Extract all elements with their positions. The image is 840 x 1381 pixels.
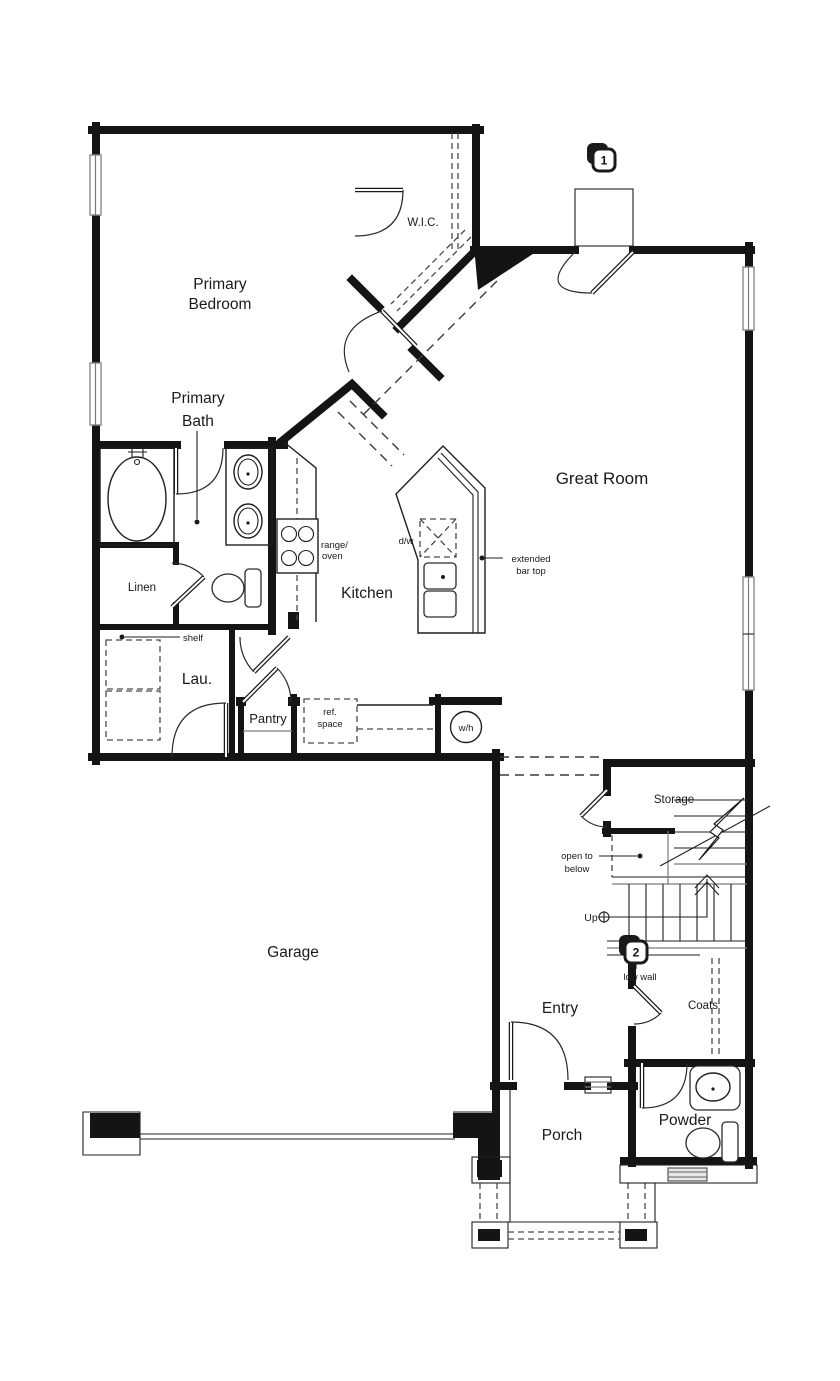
label-laundry: Lau.	[182, 671, 212, 688]
label-primary-bedroom-1: Primary	[193, 276, 247, 293]
label-range-1: range/	[321, 540, 348, 551]
marker-1-number: 1	[601, 154, 608, 168]
label-great-room: Great Room	[556, 469, 649, 488]
leader-lines	[120, 431, 643, 969]
garage-door-line	[140, 1134, 455, 1139]
label-bartop-2: bar top	[516, 566, 546, 577]
door-swing-arc	[558, 252, 592, 293]
label-ref-2: space	[317, 719, 342, 730]
interior-walls	[96, 246, 672, 833]
label-kitchen: Kitchen	[341, 585, 393, 602]
label-bartop-1: extended	[511, 554, 550, 565]
label-water-heater: w/h	[458, 723, 474, 734]
label-open-below-2: below	[565, 864, 590, 875]
bathtub-icon	[100, 448, 174, 545]
label-ref-1: ref.	[323, 707, 337, 718]
marker-2-number: 2	[633, 946, 640, 960]
label-porch: Porch	[542, 1127, 583, 1144]
dashed-lines	[338, 133, 719, 1058]
label-wic: W.I.C.	[407, 217, 438, 229]
vanity-counter	[226, 448, 272, 545]
label-garage: Garage	[267, 944, 319, 961]
label-up: Up	[584, 912, 598, 924]
marker-2: 2	[619, 935, 647, 963]
label-linen: Linen	[128, 582, 156, 594]
staircase	[598, 798, 770, 955]
label-shelf: shelf	[183, 633, 203, 644]
floor-plan-page: 1 2 Primary Bedroom Primary Bath W.I.C. …	[0, 0, 840, 1381]
wall-corner-fill	[474, 246, 545, 290]
exterior-walls	[90, 126, 753, 1180]
label-primary-bath-1: Primary	[171, 390, 225, 407]
dryer-icon	[106, 691, 160, 740]
label-range-2: oven	[322, 551, 343, 562]
label-coats: Coats	[688, 1000, 718, 1012]
label-powder: Powder	[659, 1112, 712, 1129]
label-storage: Storage	[654, 794, 694, 806]
toilet-icon	[722, 1122, 738, 1162]
label-low-wall: low wall	[623, 972, 656, 983]
label-primary-bedroom-2: Bedroom	[189, 296, 252, 313]
floor-plan-canvas: 1 2 Primary Bedroom Primary Bath W.I.C. …	[0, 0, 840, 1381]
label-pantry: Pantry	[249, 711, 287, 726]
stoop-outline	[575, 189, 633, 246]
toilet-icon	[245, 569, 261, 607]
rear-threshold	[668, 1168, 707, 1181]
closet-rod-dashes	[452, 133, 458, 250]
label-primary-bath-2: Bath	[182, 413, 214, 430]
marker-1: 1	[587, 143, 615, 171]
label-open-below-1: open to	[561, 851, 593, 862]
washer-icon	[106, 640, 160, 689]
kitchen-sink-icon	[424, 563, 456, 589]
label-entry: Entry	[542, 1000, 578, 1017]
label-dishwasher: d/w	[399, 536, 414, 547]
doors	[172, 189, 687, 1108]
range-oven-icon	[277, 519, 318, 573]
